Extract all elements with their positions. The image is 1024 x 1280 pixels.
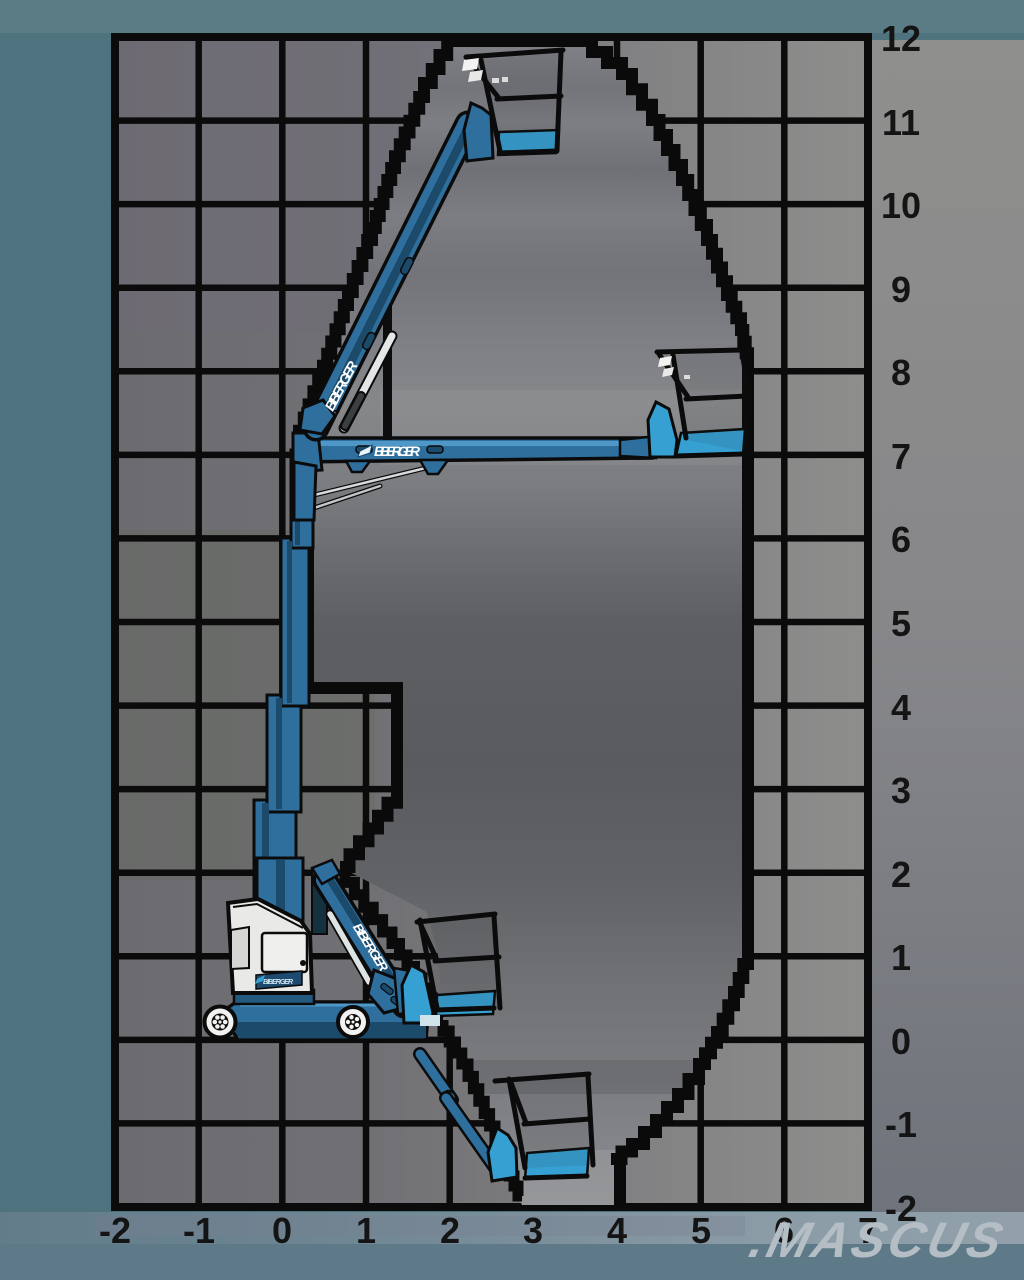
svg-text:BIBERGER: BIBERGER (374, 443, 421, 459)
svg-text:3: 3 (523, 1210, 543, 1251)
svg-text:-1: -1 (885, 1104, 917, 1145)
svg-text:0: 0 (891, 1021, 911, 1062)
svg-text:10: 10 (881, 185, 921, 226)
svg-text:4: 4 (891, 687, 911, 728)
svg-text:2: 2 (891, 854, 911, 895)
svg-text:12: 12 (881, 18, 921, 59)
svg-text:9: 9 (891, 269, 911, 310)
svg-text:0: 0 (272, 1210, 292, 1251)
svg-text:BIBERGER: BIBERGER (263, 979, 293, 986)
svg-text:7: 7 (891, 436, 911, 477)
svg-text:1: 1 (356, 1210, 376, 1251)
svg-text:-1: -1 (183, 1210, 215, 1251)
svg-text:3: 3 (891, 770, 911, 811)
svg-text:5: 5 (891, 603, 911, 644)
svg-text:5: 5 (691, 1210, 711, 1251)
svg-text:8: 8 (891, 352, 911, 393)
svg-text:2: 2 (440, 1210, 460, 1251)
svg-text:4: 4 (607, 1210, 627, 1251)
svg-text:11: 11 (882, 102, 920, 143)
svg-text:1: 1 (891, 937, 911, 978)
svg-text:-2: -2 (99, 1210, 131, 1251)
svg-text:6: 6 (891, 519, 911, 560)
